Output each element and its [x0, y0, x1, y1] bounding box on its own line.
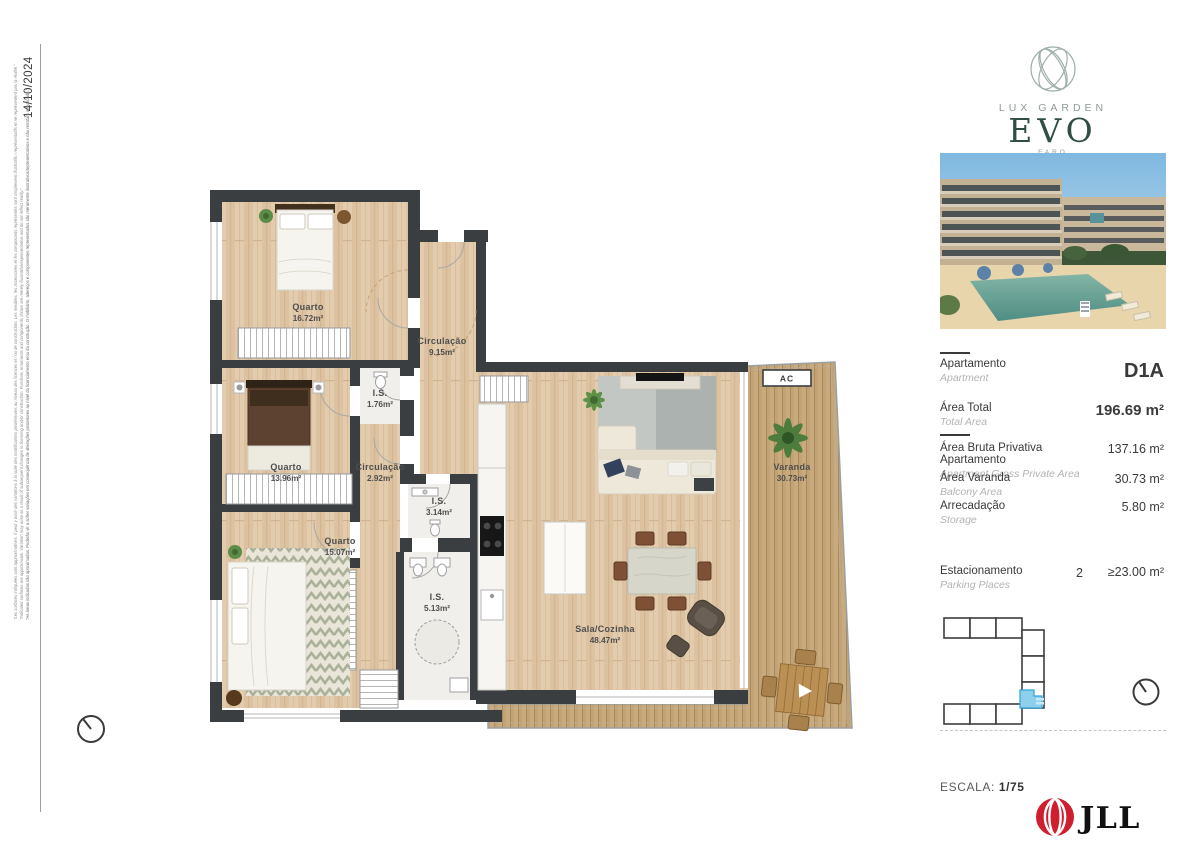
spec-row-parking: Estacionamento Parking Places 2 ≥23.00 m…: [940, 565, 1164, 591]
svg-text:2.92m²: 2.92m²: [367, 474, 393, 483]
balcony-area-value: 30.73 m²: [1115, 472, 1164, 486]
storage-value: 5.80 m²: [1122, 500, 1164, 514]
spec-row-total-area: Área Total Total Area 196.69 m²: [940, 402, 1164, 428]
svg-text:13.96m²: 13.96m²: [271, 474, 302, 483]
section-divider: [940, 352, 970, 354]
info-panel: LUX GARDEN EVO FARO: [940, 40, 1166, 840]
north-compass-icon: [74, 712, 108, 746]
room-label: Sala/Cozinha: [575, 624, 635, 634]
label-en: Apartment: [940, 372, 1006, 384]
brand-sphere-icon: [1024, 40, 1082, 98]
svg-text:15.07m²: 15.07m²: [325, 548, 356, 557]
building-key-plan: [942, 616, 1047, 728]
room-label: Circulação: [417, 336, 466, 346]
svg-text:1.76m²: 1.76m²: [367, 400, 393, 409]
svg-text:3.14m²: 3.14m²: [426, 508, 452, 517]
building-photo: [940, 153, 1166, 329]
jll-wordmark: JLL: [1077, 801, 1141, 836]
floorplan-sheet: 14/10/2024 "Les surfaces indiquées sont …: [0, 0, 1200, 849]
parking-count: 2: [1076, 566, 1083, 580]
north-compass-icon: [1130, 676, 1162, 708]
ac-label: AC: [780, 374, 794, 384]
brand-name: EVO: [940, 114, 1166, 148]
spec-row-storage: Arrecadação Storage 5.80 m²: [940, 500, 1164, 526]
svg-text:16.72m²: 16.72m²: [293, 314, 324, 323]
room-label: Quarto: [324, 536, 356, 546]
svg-text:5.13m²: 5.13m²: [424, 604, 450, 613]
room-label: I.S.: [430, 592, 445, 602]
spec-row-balcony-area: Área Varanda Balcony Area 30.73 m²: [940, 472, 1164, 498]
scale-label: ESCALA:: [940, 780, 995, 794]
total-area-value: 196.69 m²: [1096, 402, 1164, 419]
room-label: Quarto: [270, 462, 302, 472]
label-pt: Apartamento: [940, 358, 1006, 370]
fold-mark: [940, 730, 1166, 731]
scale-line: ESCALA: 1/75: [940, 780, 1025, 794]
scale-value: 1/75: [999, 780, 1025, 794]
gross-area-value: 137.16 m²: [1108, 442, 1164, 456]
svg-text:48.47m²: 48.47m²: [590, 636, 621, 645]
parking-area-value: ≥23.00 m²: [1108, 565, 1164, 579]
room-label: I.S.: [432, 496, 447, 506]
disclaimer-pt: "As áreas indicadas são aproximadas. Pod…: [25, 64, 31, 620]
bed-third: [226, 545, 350, 706]
left-margin-rule: [40, 44, 41, 812]
svg-text:9.15m²: 9.15m²: [429, 348, 455, 357]
bed-second: [234, 380, 324, 470]
room-label: I.S.: [373, 388, 388, 398]
svg-text:30.73m²: 30.73m²: [777, 474, 808, 483]
brand-block: LUX GARDEN EVO FARO: [940, 40, 1166, 156]
room-label: Varanda: [773, 462, 811, 472]
section-divider: [940, 434, 970, 436]
jll-logo: JLL: [1034, 794, 1166, 840]
room-label: Circulação: [355, 462, 404, 472]
floorplan-drawing: AC Quarto 16.72m²: [190, 170, 870, 770]
spec-row-apartment: Apartamento Apartment D1A: [940, 358, 1164, 384]
disclaimer-text: "Les surfaces indiquées sont approximati…: [13, 64, 32, 620]
apartment-id: D1A: [1124, 360, 1164, 383]
room-label: Quarto: [292, 302, 324, 312]
